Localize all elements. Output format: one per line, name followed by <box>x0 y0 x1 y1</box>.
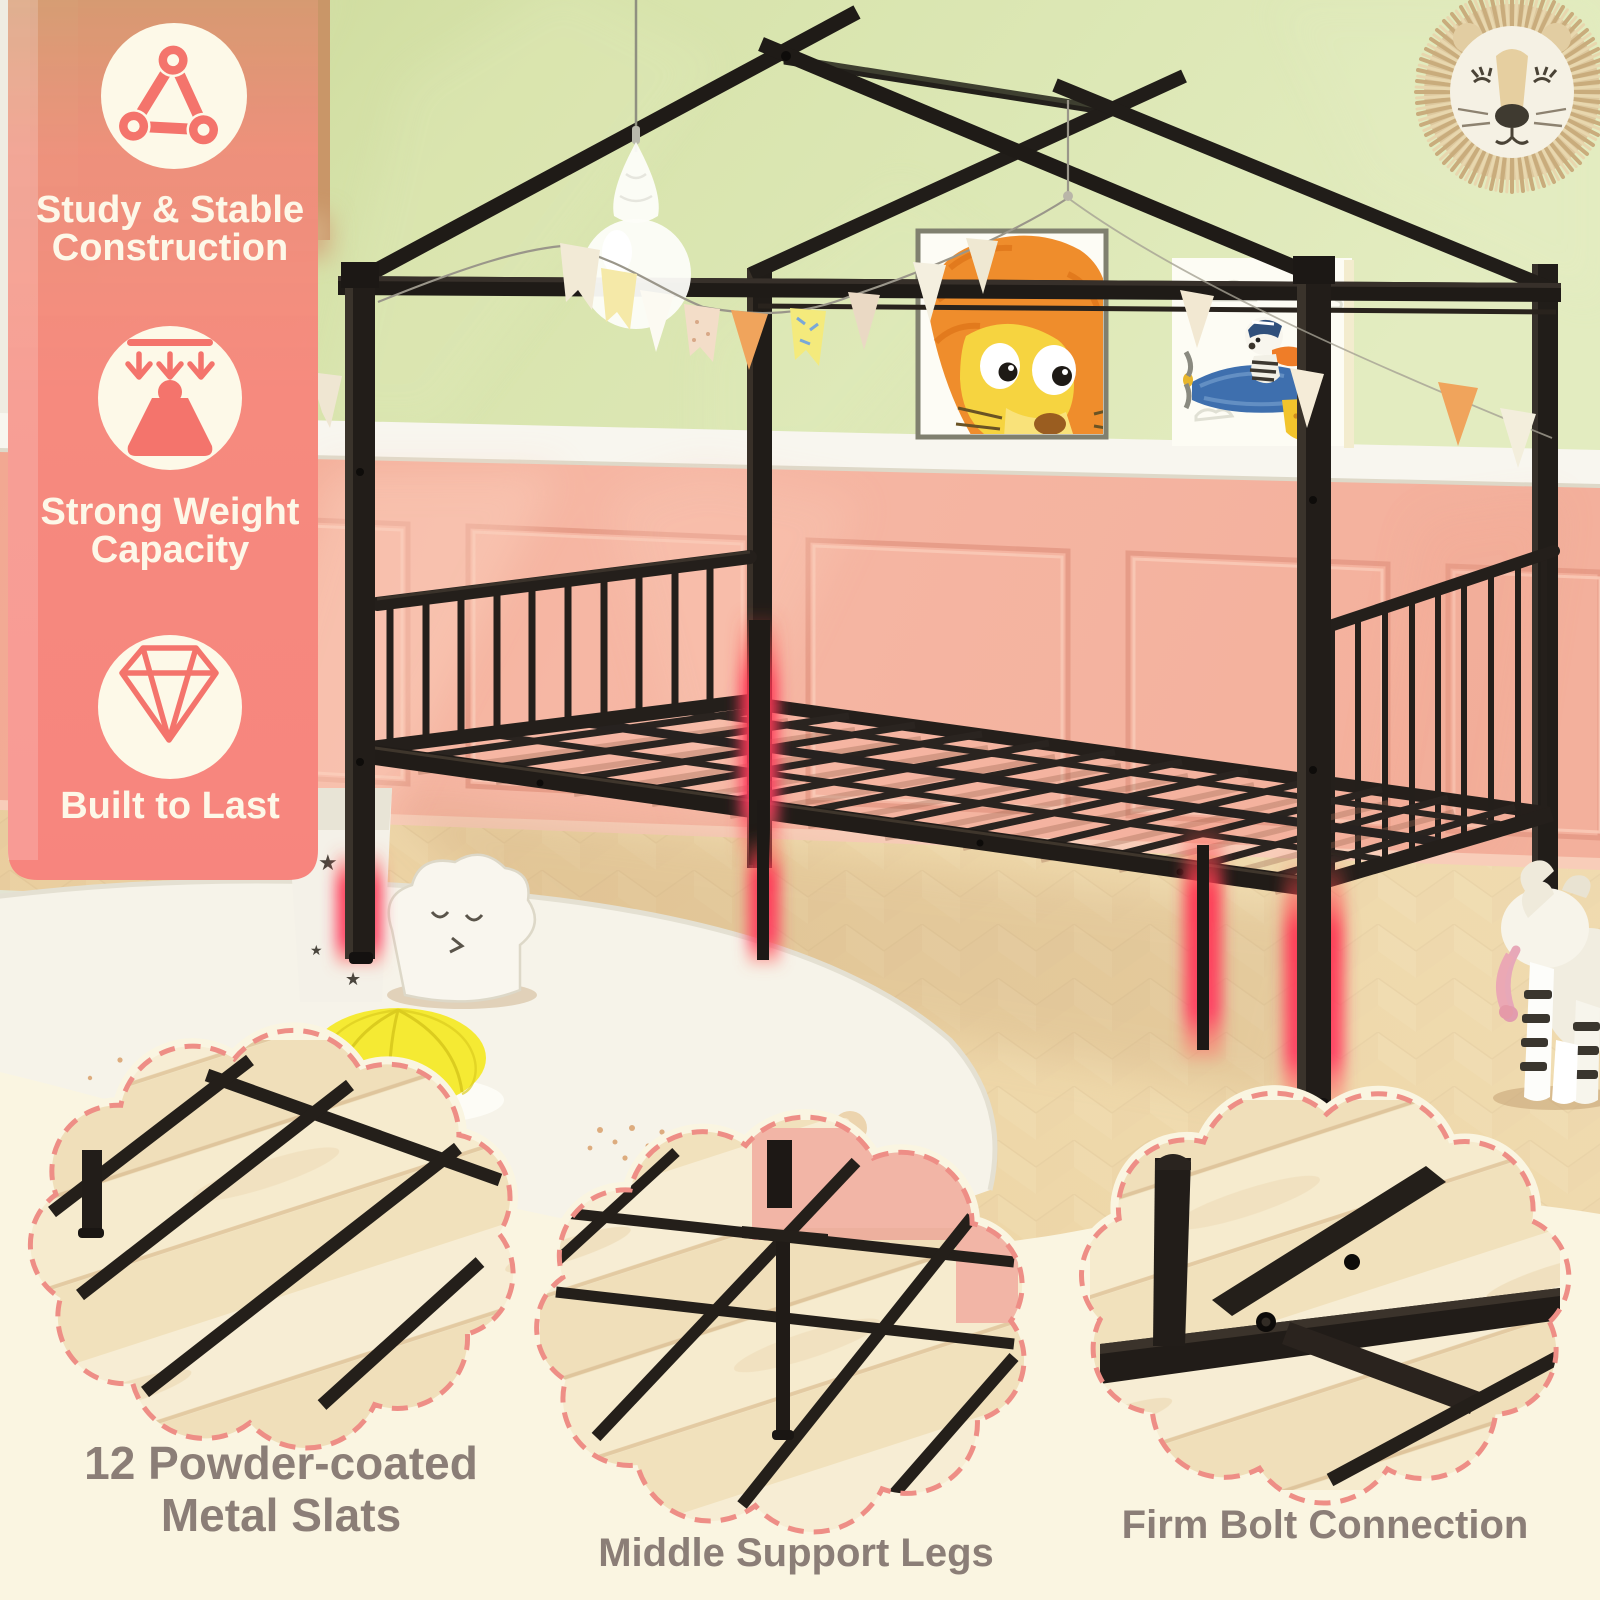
svg-text:Capacity: Capacity <box>91 529 249 571</box>
svg-text:Built to Last: Built to Last <box>60 785 280 827</box>
svg-text:Metal Slats: Metal Slats <box>161 1489 401 1541</box>
svg-text:Middle Support Legs: Middle Support Legs <box>598 1531 994 1575</box>
svg-text:Strong Weight: Strong Weight <box>41 491 300 533</box>
svg-text:12 Powder-coated: 12 Powder-coated <box>84 1437 478 1489</box>
svg-text:★: ★ <box>345 969 361 989</box>
svg-text:★: ★ <box>310 942 323 958</box>
svg-text:Study & Stable: Study & Stable <box>36 189 304 231</box>
svg-text:Construction: Construction <box>52 227 288 269</box>
svg-text:Firm Bolt Connection: Firm Bolt Connection <box>1122 1503 1529 1547</box>
svg-text:★: ★ <box>318 850 338 875</box>
